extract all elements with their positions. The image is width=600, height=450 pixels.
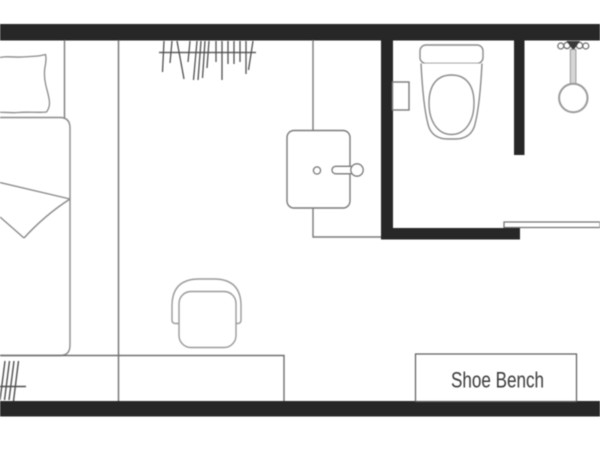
svg-text:Shoe Bench: Shoe Bench bbox=[451, 368, 544, 393]
